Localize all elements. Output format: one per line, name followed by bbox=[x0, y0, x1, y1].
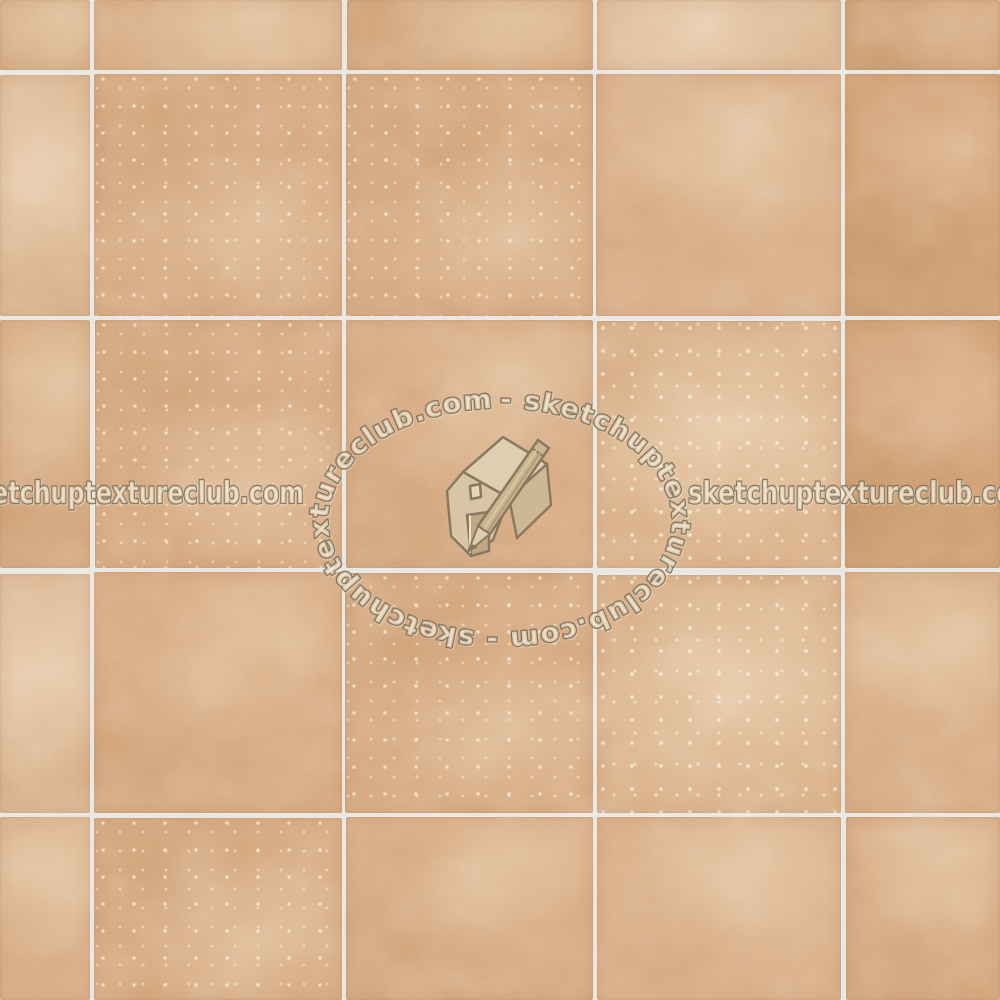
tile-texture-image: - sketchuptextureclub.com - sketchuptext… bbox=[0, 0, 1000, 1000]
tile bbox=[597, 575, 841, 813]
tile bbox=[95, 320, 342, 568]
tile bbox=[846, 817, 1000, 1000]
tile bbox=[597, 0, 841, 70]
tile bbox=[94, 818, 342, 1000]
tile bbox=[94, 74, 342, 316]
tile bbox=[845, 74, 1000, 316]
tile bbox=[0, 0, 90, 70]
tile-grid bbox=[0, 0, 1000, 1000]
tile bbox=[346, 74, 593, 316]
tile bbox=[845, 320, 1000, 568]
tile bbox=[0, 574, 90, 813]
tile bbox=[596, 74, 841, 316]
tile bbox=[347, 0, 593, 70]
tile bbox=[845, 572, 1000, 813]
tile bbox=[597, 321, 841, 568]
tile bbox=[845, 0, 1000, 70]
tile bbox=[0, 817, 90, 1000]
tile bbox=[94, 0, 342, 70]
tile bbox=[346, 817, 593, 1000]
tile bbox=[0, 320, 90, 568]
tile bbox=[94, 572, 342, 813]
tile bbox=[346, 320, 593, 568]
tile bbox=[345, 573, 593, 813]
tile bbox=[597, 817, 841, 1000]
tile bbox=[0, 75, 90, 316]
